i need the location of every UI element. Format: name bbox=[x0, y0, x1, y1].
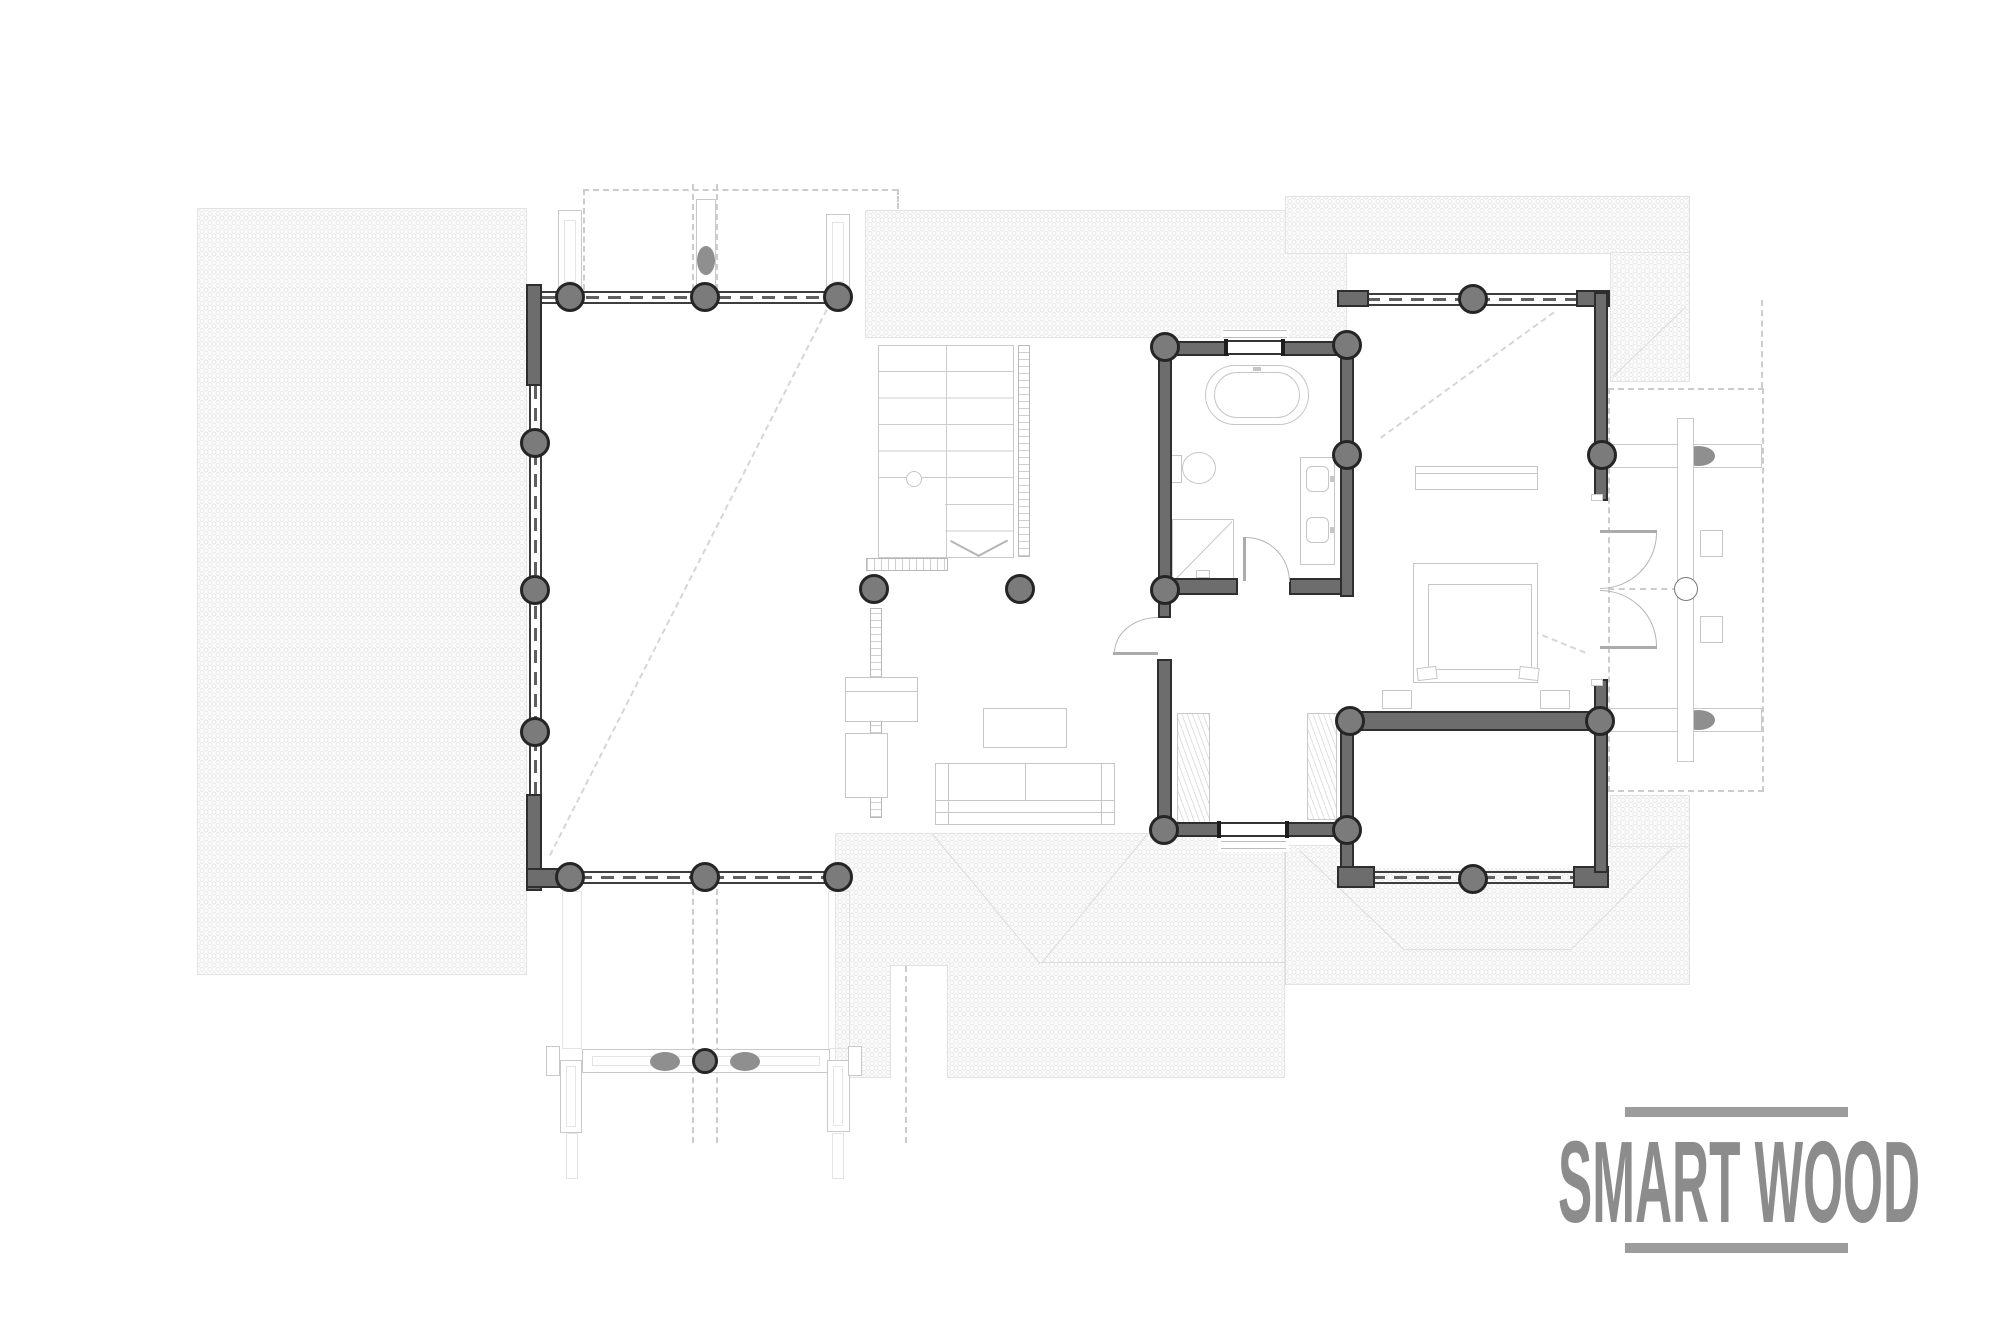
round-column-icon bbox=[1587, 440, 1617, 470]
round-column-icon bbox=[555, 282, 585, 312]
round-column-icon bbox=[1005, 574, 1035, 604]
window-jamb bbox=[1224, 339, 1228, 356]
window-icon bbox=[1227, 340, 1284, 355]
eave-dashed-line bbox=[1761, 300, 1763, 388]
dresser-line bbox=[1415, 473, 1538, 474]
bathtub-faucet bbox=[1253, 367, 1261, 371]
shower-drain bbox=[1196, 570, 1210, 578]
room-floor bbox=[1351, 725, 1597, 868]
round-column-icon bbox=[1332, 330, 1362, 360]
sofa-line bbox=[935, 812, 1115, 813]
door-centerline bbox=[1608, 588, 1678, 590]
round-column-icon bbox=[520, 717, 550, 747]
round-column-icon bbox=[1335, 706, 1365, 736]
wall-segment bbox=[1340, 731, 1354, 827]
round-column-icon bbox=[1332, 440, 1362, 470]
railing-icon bbox=[1018, 345, 1030, 557]
porch-post-inner bbox=[564, 220, 576, 282]
roof-hatch-left bbox=[197, 208, 527, 975]
brand-logo: SMART WOOD bbox=[1552, 1128, 1927, 1243]
porch-beam bbox=[696, 199, 716, 289]
porch-post-inner bbox=[566, 1066, 576, 1127]
wall-segment bbox=[1340, 345, 1354, 597]
wardrobe-icon bbox=[1177, 713, 1210, 823]
round-column-icon bbox=[1585, 706, 1615, 736]
round-column-icon bbox=[690, 862, 720, 892]
sofa-line bbox=[948, 763, 949, 825]
wall-segment bbox=[1157, 659, 1172, 824]
round-column-icon bbox=[1458, 864, 1488, 894]
vanity-faucet bbox=[1330, 476, 1335, 482]
round-column-icon bbox=[692, 1048, 718, 1074]
vanity-sink bbox=[1306, 517, 1329, 543]
sofa-line bbox=[1025, 763, 1026, 800]
round-column-icon bbox=[1150, 575, 1180, 605]
wall-segment bbox=[1337, 290, 1369, 307]
roof-hatch-top-right bbox=[1285, 196, 1690, 254]
roof-edge-line bbox=[1285, 845, 1286, 985]
dresser-icon bbox=[1415, 466, 1538, 490]
sofa-line bbox=[1101, 763, 1102, 825]
wall-segment bbox=[1352, 711, 1598, 731]
door-swing-icon bbox=[1114, 617, 1158, 653]
coffee-table-icon bbox=[983, 708, 1067, 748]
roof-hatch-top-middle bbox=[865, 210, 1347, 338]
vanity-sink bbox=[1306, 466, 1329, 492]
porch-post-inner bbox=[833, 1066, 843, 1126]
floor-plan-canvas: SMART WOOD bbox=[0, 0, 2000, 1330]
slope-dashed-diagonal bbox=[1380, 312, 1555, 439]
round-column-icon bbox=[1150, 332, 1180, 362]
wall-segment bbox=[1594, 733, 1608, 873]
round-column-icon bbox=[1149, 815, 1179, 845]
round-column-icon bbox=[1332, 815, 1362, 845]
window-sill bbox=[1223, 330, 1287, 338]
round-column-icon bbox=[1458, 284, 1488, 314]
balcony-furniture bbox=[1700, 530, 1723, 557]
wall-segment bbox=[1172, 341, 1229, 356]
eave-dashed-line bbox=[583, 189, 585, 290]
eave-dashed-line bbox=[692, 889, 694, 1143]
tv-cabinet-line bbox=[845, 691, 918, 692]
porch-post-foot bbox=[832, 1133, 844, 1179]
porch-post-inner bbox=[832, 222, 844, 282]
wardrobe-icon bbox=[1307, 713, 1337, 820]
tv-cabinet-icon bbox=[845, 677, 918, 722]
nightstand-icon bbox=[1540, 690, 1570, 709]
window-icon bbox=[1220, 822, 1288, 837]
chimney-dashed-line bbox=[905, 966, 907, 1143]
porch-post-foot bbox=[566, 1133, 578, 1179]
window-jamb bbox=[1285, 821, 1289, 838]
eave-dashed-line bbox=[692, 184, 694, 290]
railing-icon bbox=[866, 558, 948, 571]
round-table-icon bbox=[1674, 577, 1698, 601]
logo-bottom-bar bbox=[1625, 1243, 1848, 1253]
bed-mattress bbox=[1428, 584, 1532, 670]
bed-pillow bbox=[1416, 666, 1437, 681]
wall-segment bbox=[1337, 866, 1375, 888]
wall-segment bbox=[526, 284, 542, 386]
round-column-icon bbox=[520, 575, 550, 605]
wall-segment bbox=[1594, 292, 1608, 464]
wall-segment bbox=[1158, 347, 1172, 592]
sofa-line bbox=[935, 800, 1115, 801]
oval-column-icon bbox=[697, 246, 715, 275]
nightstand-icon bbox=[1382, 690, 1412, 709]
porch-strip bbox=[562, 891, 582, 1049]
eave-dashed-line bbox=[583, 189, 898, 191]
round-column-icon bbox=[690, 282, 720, 312]
brand-logo-text: SMART WOOD bbox=[1558, 1128, 1920, 1243]
vanity-faucet bbox=[1330, 527, 1335, 533]
door-leaf bbox=[1600, 646, 1657, 649]
tv-cabinet-icon bbox=[845, 733, 888, 798]
eave-dashed-line bbox=[716, 184, 718, 290]
slope-dashed-diagonal bbox=[549, 300, 832, 856]
bathtub-inner bbox=[1214, 372, 1300, 418]
door-swing-icon bbox=[1246, 537, 1290, 582]
round-column-icon bbox=[520, 428, 550, 458]
roof-hatch-right-lower-strip bbox=[1610, 795, 1690, 847]
round-column-icon bbox=[823, 862, 853, 892]
stair-landing bbox=[879, 480, 945, 557]
bed-pillow bbox=[1518, 666, 1539, 681]
roof-ridge-line bbox=[1405, 949, 1570, 950]
eave-dashed-line bbox=[716, 889, 718, 1143]
roof-hatch-right-strip bbox=[1610, 252, 1690, 382]
door-jamb bbox=[1591, 679, 1603, 686]
logo-top-bar bbox=[1625, 1107, 1848, 1117]
balcony-furniture bbox=[1700, 616, 1723, 643]
window-jamb bbox=[1281, 339, 1285, 356]
stair-newel bbox=[906, 471, 922, 487]
round-column-icon bbox=[823, 282, 853, 312]
window-sill bbox=[1221, 841, 1286, 849]
window-jamb bbox=[1217, 821, 1221, 838]
door-jamb bbox=[1591, 494, 1603, 501]
oval-column-icon bbox=[730, 1052, 760, 1071]
eave-dashed-line bbox=[897, 189, 899, 209]
round-column-icon bbox=[555, 862, 585, 892]
porch-bracket bbox=[848, 1046, 862, 1076]
round-column-icon bbox=[859, 574, 889, 604]
chimney-notch bbox=[890, 965, 948, 1078]
oval-column-icon bbox=[650, 1052, 680, 1071]
roof-ridge-line bbox=[1041, 962, 1285, 963]
porch-bracket bbox=[546, 1046, 560, 1076]
porch-strip bbox=[828, 891, 850, 1049]
toilet-bowl bbox=[1182, 452, 1216, 484]
